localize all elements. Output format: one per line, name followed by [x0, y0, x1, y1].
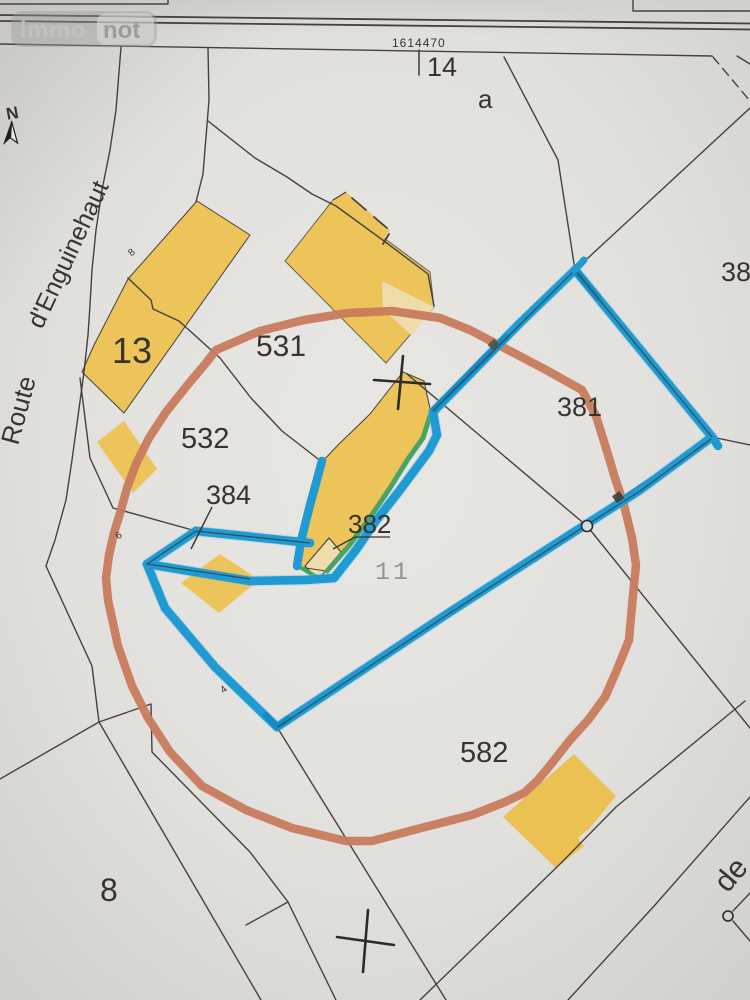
svg-text:8: 8	[100, 872, 118, 908]
svg-text:381: 381	[557, 392, 602, 422]
svg-text:38: 38	[721, 257, 750, 287]
svg-text:382: 382	[348, 509, 391, 539]
svg-text:532: 532	[181, 423, 229, 455]
svg-text:immo: immo	[20, 17, 86, 44]
svg-text:not: not	[103, 17, 140, 44]
svg-text:a: a	[478, 84, 493, 114]
svg-text:11: 11	[375, 558, 411, 587]
svg-text:14: 14	[427, 52, 457, 82]
svg-text:582: 582	[460, 737, 508, 769]
svg-text:384: 384	[206, 480, 251, 510]
svg-text:13: 13	[112, 330, 152, 371]
svg-text:1614470: 1614470	[392, 36, 446, 50]
svg-text:531: 531	[256, 330, 306, 363]
